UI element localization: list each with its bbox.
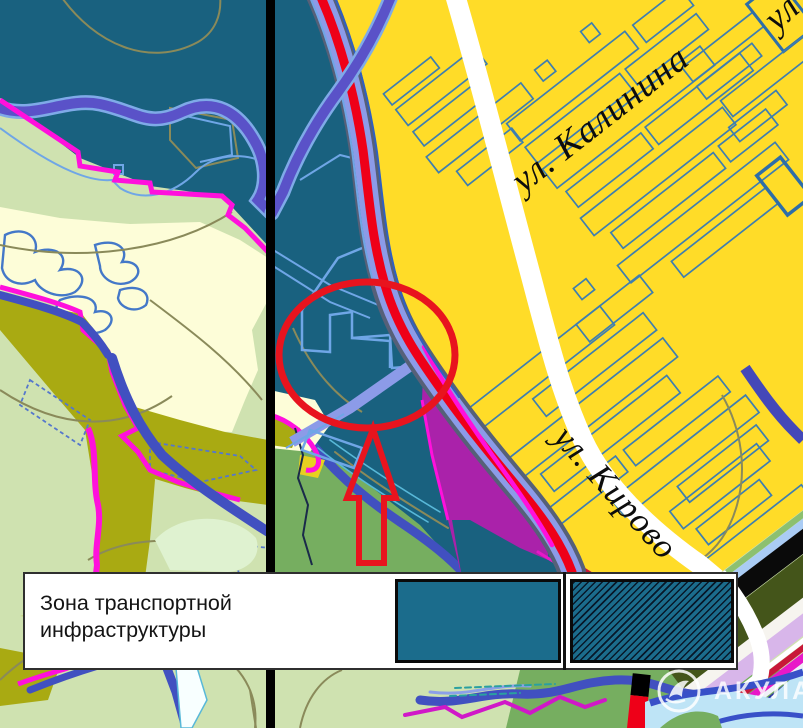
legend-swatch-hatched (570, 579, 734, 663)
legend: Зона транспортной инфраструктуры (23, 572, 738, 670)
legend-title-line2: инфраструктуры (40, 617, 232, 644)
legend-divider (563, 572, 566, 670)
watermark-text: АКУЛА (714, 677, 803, 706)
watermark: АКУЛА (656, 668, 803, 714)
legend-title-line1: Зона транспортной (40, 590, 232, 617)
legend-title: Зона транспортной инфраструктуры (40, 590, 232, 643)
legend-swatch-solid (395, 579, 561, 663)
map-viewport: ул. Калинина ул. Кирово ул Зона транспор… (0, 0, 803, 728)
shark-circle-icon (656, 668, 702, 714)
